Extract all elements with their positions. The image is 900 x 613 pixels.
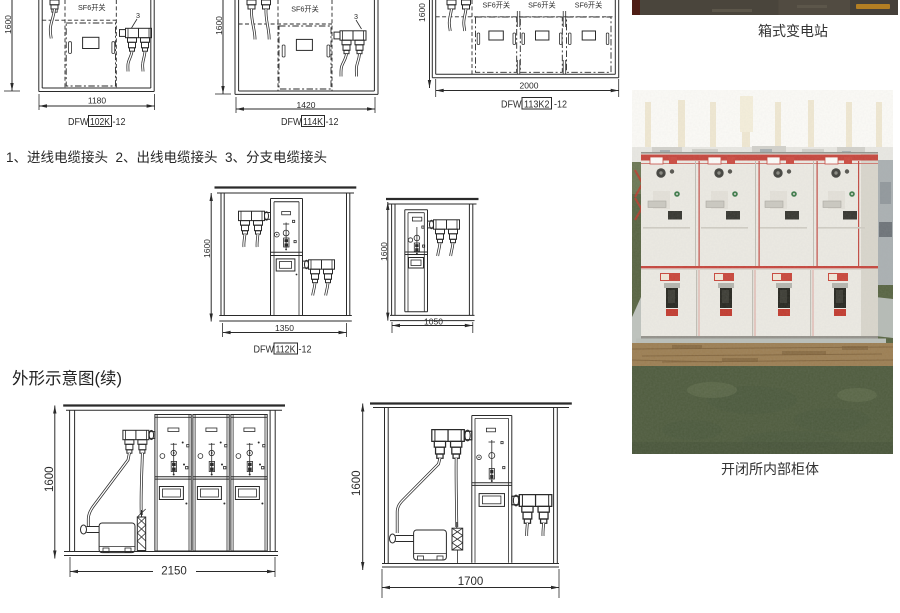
svg-text:1420: 1420 [297,100,316,110]
svg-text:3: 3 [354,12,358,21]
svg-text:SF6开关: SF6开关 [483,1,511,10]
svg-text:1600: 1600 [3,15,13,34]
svg-text:-12: -12 [299,344,312,356]
svg-text:1600: 1600 [417,3,427,22]
svg-text:1050: 1050 [424,317,443,327]
svg-text:-12: -12 [113,116,126,128]
svg-text:DFW: DFW [68,116,89,128]
svg-text:2000: 2000 [520,81,539,91]
svg-text:1600: 1600 [351,470,363,496]
svg-text:DFW: DFW [281,116,302,128]
svg-text:SF6开关: SF6开关 [291,5,319,14]
svg-text:1600: 1600 [379,242,389,261]
svg-text:-12: -12 [326,116,339,128]
svg-text:SF6开关: SF6开关 [528,1,556,10]
svg-text:102K: 102K [90,116,110,128]
svg-text:SF6开关: SF6开关 [575,1,603,10]
svg-text:SF6开关: SF6开关 [78,3,106,12]
svg-text:1600: 1600 [202,239,212,258]
svg-text:112K: 112K [276,344,296,356]
svg-text:DFW: DFW [501,99,522,111]
svg-text:1700: 1700 [458,576,484,588]
svg-text:2150: 2150 [161,566,187,578]
svg-text:114K: 114K [303,116,323,128]
svg-text:DFW: DFW [254,344,275,356]
svg-text:1600: 1600 [44,466,56,492]
svg-text:3: 3 [136,11,140,20]
svg-text:1600: 1600 [214,16,224,35]
svg-text:-12: -12 [554,99,567,111]
svg-text:113K2: 113K2 [524,99,550,111]
svg-text:1350: 1350 [275,323,294,333]
svg-text:1180: 1180 [88,96,107,106]
